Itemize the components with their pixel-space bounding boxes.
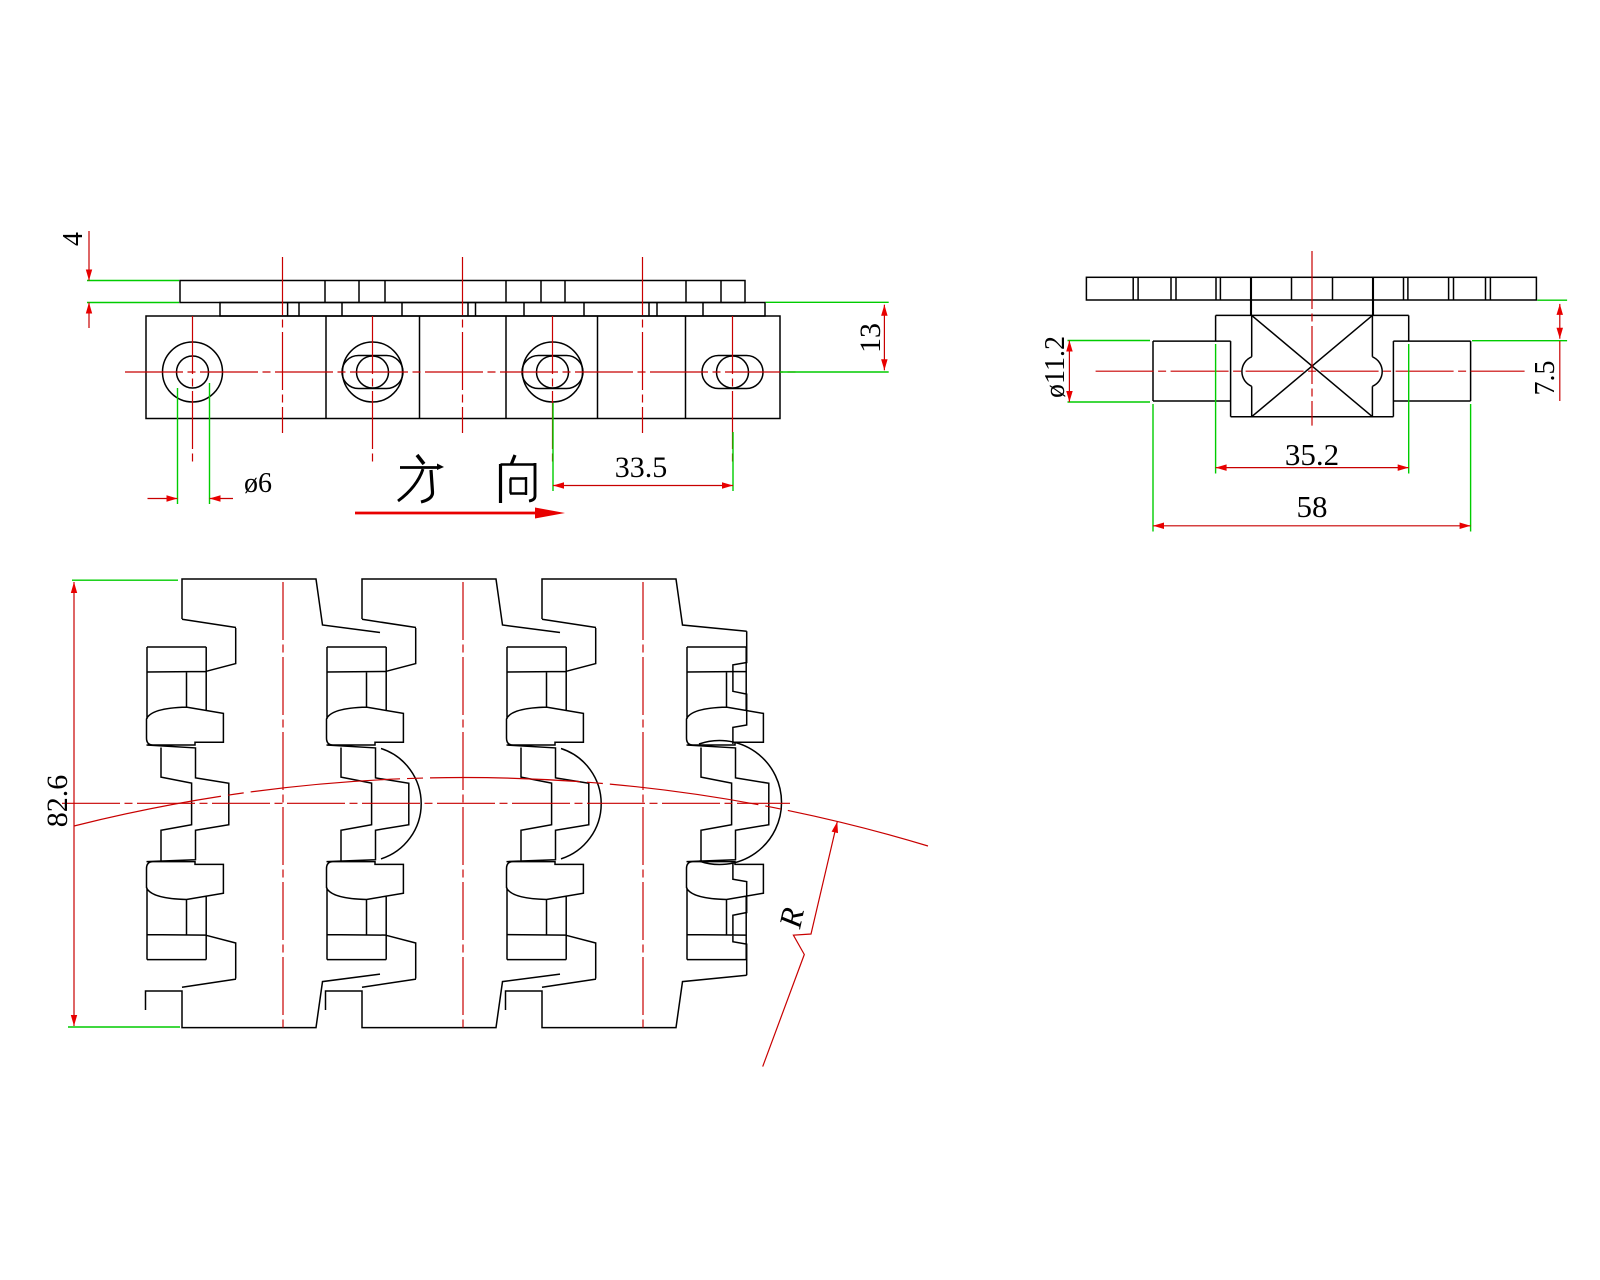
- svg-text:R: R: [771, 904, 811, 932]
- svg-text:ø11.2: ø11.2: [1040, 336, 1071, 398]
- svg-text:82.6: 82.6: [41, 775, 74, 828]
- svg-text:58: 58: [1297, 489, 1328, 524]
- svg-text:35.2: 35.2: [1285, 437, 1339, 472]
- svg-text:33.5: 33.5: [615, 451, 668, 484]
- svg-text:13: 13: [854, 323, 887, 353]
- svg-text:ø6: ø6: [244, 468, 272, 499]
- svg-text:4: 4: [58, 232, 89, 246]
- svg-text:7.5: 7.5: [1530, 361, 1561, 396]
